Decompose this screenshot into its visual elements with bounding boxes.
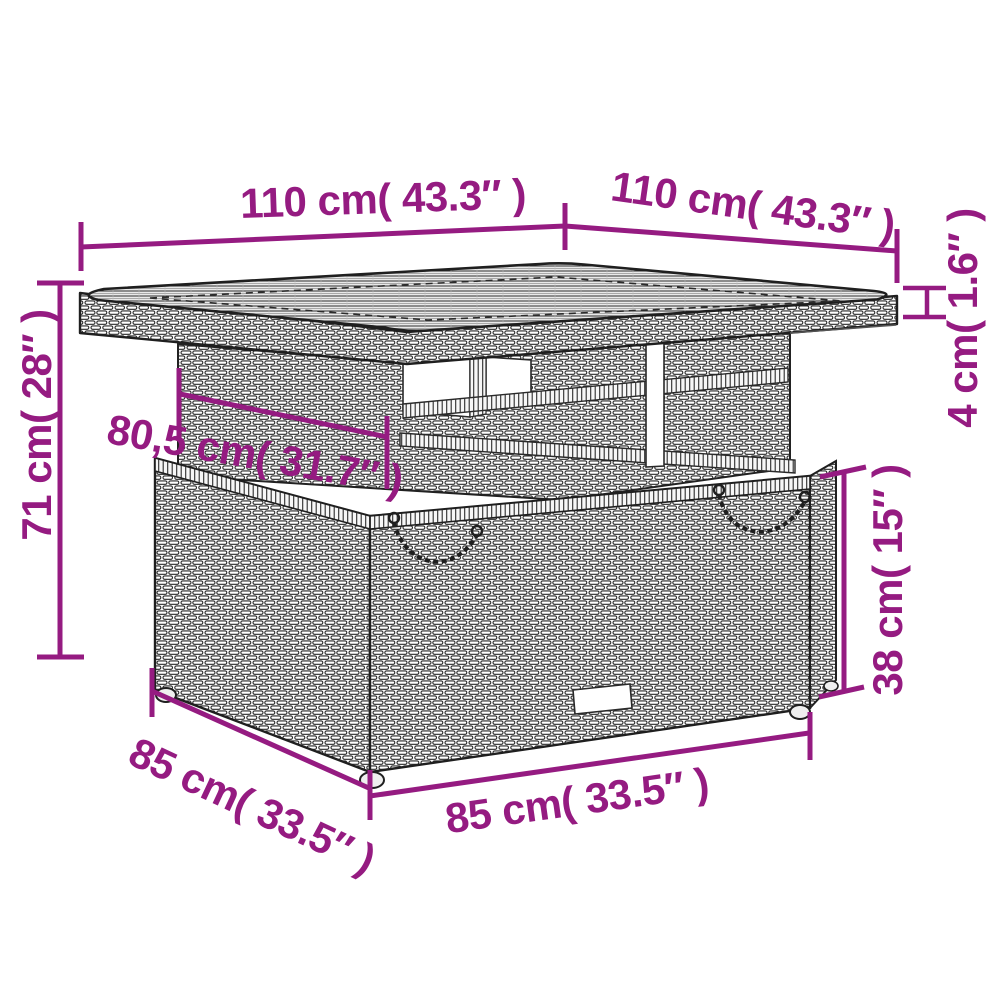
dimension-label-tabletop-width: 110 cm( 43.3″ ) bbox=[239, 173, 526, 225]
base-foot bbox=[790, 705, 810, 719]
base-front-left-face bbox=[155, 458, 370, 772]
dimension-label-base-height: 38 cm( 15″ ) bbox=[867, 464, 909, 695]
table-line-art bbox=[0, 0, 1000, 1000]
product-dimension-diagram: 110 cm( 43.3″ ) 110 cm( 43.3″ ) 4 cm( 1.… bbox=[0, 0, 1000, 1000]
base-right-return-face bbox=[810, 461, 836, 708]
dimension-label-tabletop-thickness: 4 cm( 1.6″ ) bbox=[942, 208, 984, 428]
base-vent-plate bbox=[573, 684, 632, 714]
table-leg bbox=[646, 330, 664, 467]
base-foot bbox=[824, 681, 838, 691]
dimension-label-overall-height: 71 cm( 28″ ) bbox=[16, 309, 58, 540]
